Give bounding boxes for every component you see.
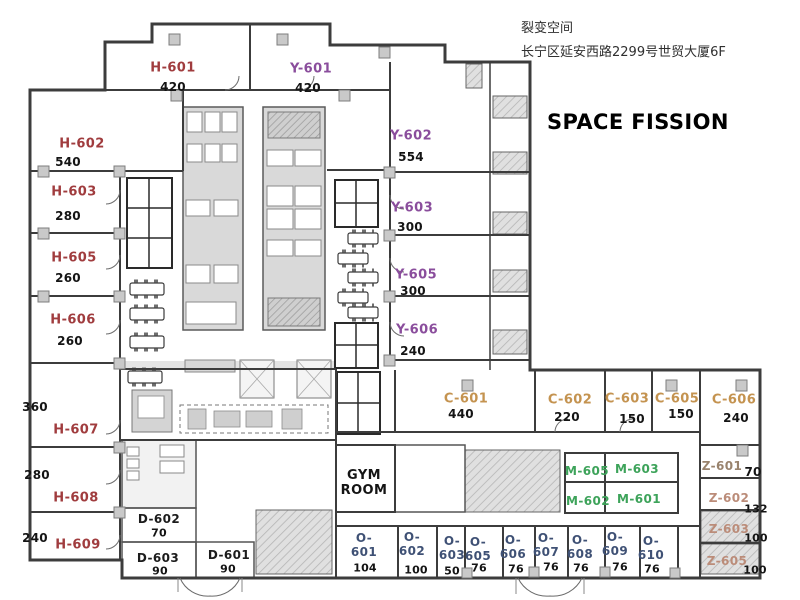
room-area-o-607: 76	[543, 561, 559, 574]
room-label-o-606: O-606	[500, 534, 526, 562]
room-area-d-601: 90	[220, 563, 236, 576]
room-label-z-603: Z-603	[709, 523, 750, 537]
room-area-h-608: 280	[24, 468, 50, 482]
room-label-z-605: Z-605	[707, 555, 748, 569]
room-area-z-605: 100	[743, 564, 767, 577]
room-label-c-601: C-601	[444, 393, 488, 408]
room-label-d-602: D-602	[138, 513, 180, 527]
room-label-h-603: H-603	[51, 186, 96, 201]
room-area-o-602: 100	[404, 564, 428, 577]
room-label-m-602: M-602	[566, 495, 610, 509]
room-label-m-601: M-601	[617, 493, 661, 507]
room-label-h-605: H-605	[51, 252, 96, 267]
room-area-c-605: 150	[668, 407, 694, 421]
room-label-y-601: Y-601	[290, 63, 332, 78]
room-label-o-603: O-603	[439, 535, 465, 563]
room-area-h-605: 260	[55, 271, 81, 285]
room-label-gym-room: GYMROOM	[341, 469, 388, 499]
room-area-h-602: 540	[55, 155, 81, 169]
room-label-o-602: O-602	[399, 531, 425, 559]
room-label-y-605: Y-605	[395, 269, 437, 284]
room-label-o-601: O-601	[351, 532, 377, 560]
room-label-h-609: H-609	[55, 539, 100, 554]
room-area-h-609: 240	[22, 531, 48, 545]
room-area-y-601: 420	[295, 81, 321, 95]
room-area-c-602: 220	[554, 410, 580, 424]
room-area-o-609: 76	[612, 561, 628, 574]
room-label-m-603: M-603	[615, 463, 659, 477]
room-label-c-602: C-602	[548, 394, 592, 409]
room-area-o-610: 76	[644, 563, 660, 576]
room-label-h-602: H-602	[59, 138, 104, 153]
floor-plan-page: H-601420Y-601420H-602540H-603280H-605260…	[0, 0, 800, 600]
room-area-o-608: 76	[573, 562, 589, 575]
room-area-h-606: 260	[57, 334, 83, 348]
room-area-d-603: 90	[152, 565, 168, 578]
room-area-y-605: 300	[400, 284, 426, 298]
room-area-o-601: 104	[353, 562, 377, 575]
room-labels-layer: H-601420Y-601420H-602540H-603280H-605260…	[0, 0, 800, 600]
room-area-o-606: 76	[508, 563, 524, 576]
room-area-z-602: 132	[744, 503, 768, 516]
room-label-d-601: D-601	[208, 549, 250, 563]
room-label-c-603: C-603	[605, 393, 649, 408]
room-label-o-608: O-608	[567, 534, 593, 562]
room-area-c-606: 240	[723, 411, 749, 425]
room-area-h-601: 420	[160, 80, 186, 94]
room-label-h-608: H-608	[53, 492, 98, 507]
room-area-h-607: 360	[22, 400, 48, 414]
room-label-y-603: Y-603	[391, 202, 433, 217]
room-label-h-607: H-607	[53, 424, 98, 439]
room-area-c-603: 150	[619, 412, 645, 426]
room-label-o-610: O-610	[638, 535, 664, 563]
room-area-y-603: 300	[397, 220, 423, 234]
room-label-c-606: C-606	[712, 394, 756, 409]
room-area-c-601: 440	[448, 407, 474, 421]
room-area-o-605: 76	[471, 562, 487, 575]
address: 长宁区延安西路2299号世贸大厦6F	[521, 41, 726, 60]
room-label-y-602: Y-602	[390, 130, 432, 145]
room-area-y-602: 554	[398, 150, 424, 164]
room-label-z-602: Z-602	[709, 492, 750, 506]
room-area-d-602: 70	[151, 527, 167, 540]
room-label-z-601: Z-601	[702, 460, 743, 474]
room-label-m-605: M-605	[565, 465, 609, 479]
room-area-h-603: 280	[55, 209, 81, 223]
room-area-z-603: 100	[744, 532, 768, 545]
company-name: 裂变空间	[521, 17, 573, 36]
room-label-c-605: C-605	[655, 393, 699, 408]
room-area-z-601: 70	[744, 465, 761, 479]
room-label-y-606: Y-606	[396, 324, 438, 339]
room-label-h-601: H-601	[150, 62, 195, 77]
room-label-o-607: O-607	[533, 532, 559, 560]
room-area-y-606: 240	[400, 344, 426, 358]
room-area-o-603: 50	[444, 565, 460, 578]
room-label-h-606: H-606	[50, 314, 95, 329]
room-label-o-609: O-609	[602, 531, 628, 559]
room-label-o-605: O-605	[465, 536, 491, 564]
page-title: SPACE FISSION	[547, 110, 729, 134]
